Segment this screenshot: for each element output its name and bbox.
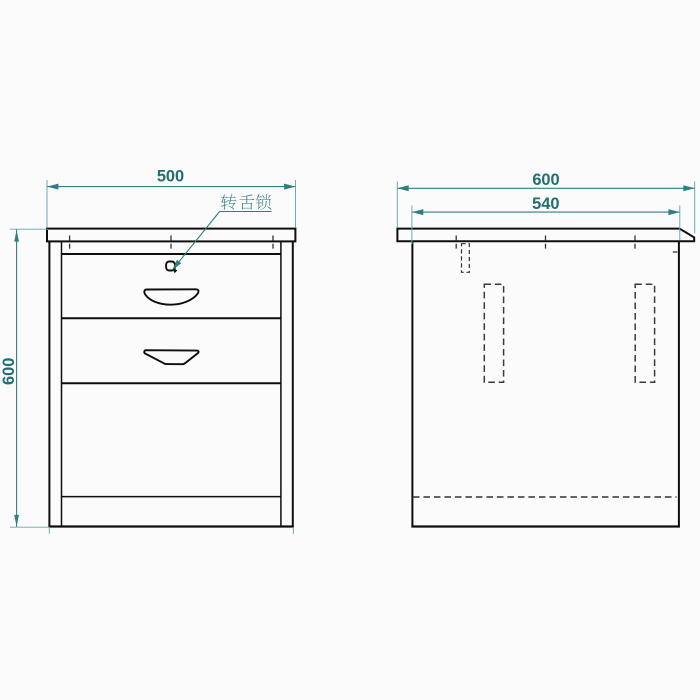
- svg-text:540: 540: [532, 195, 559, 213]
- svg-text:600: 600: [532, 171, 559, 189]
- svg-text:600: 600: [0, 358, 18, 385]
- svg-text:500: 500: [157, 167, 184, 185]
